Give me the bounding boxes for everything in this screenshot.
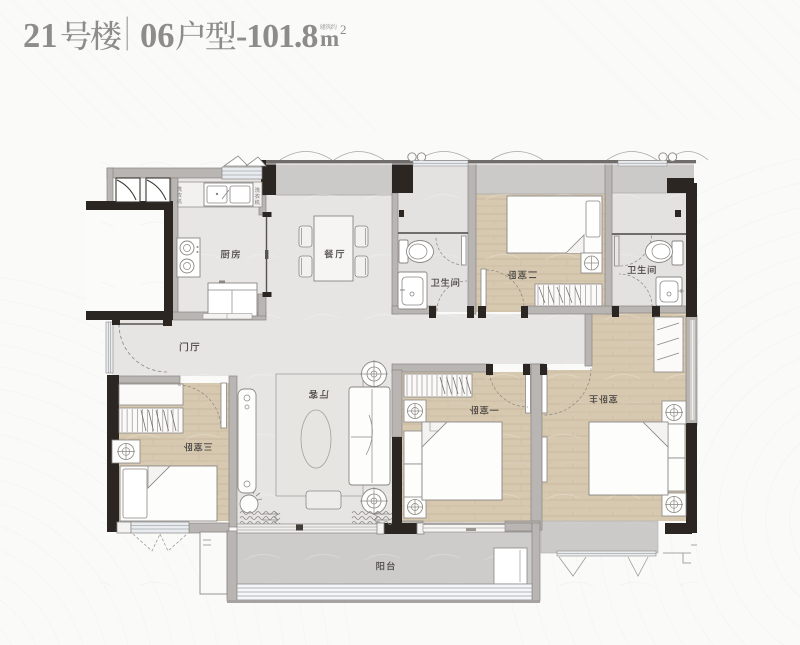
svg-text:06: 06	[140, 17, 175, 55]
svg-text:21: 21	[23, 17, 58, 55]
svg-text:2: 2	[340, 22, 347, 37]
svg-text:-101.8: -101.8	[236, 18, 317, 55]
svg-text:m: m	[320, 26, 339, 51]
